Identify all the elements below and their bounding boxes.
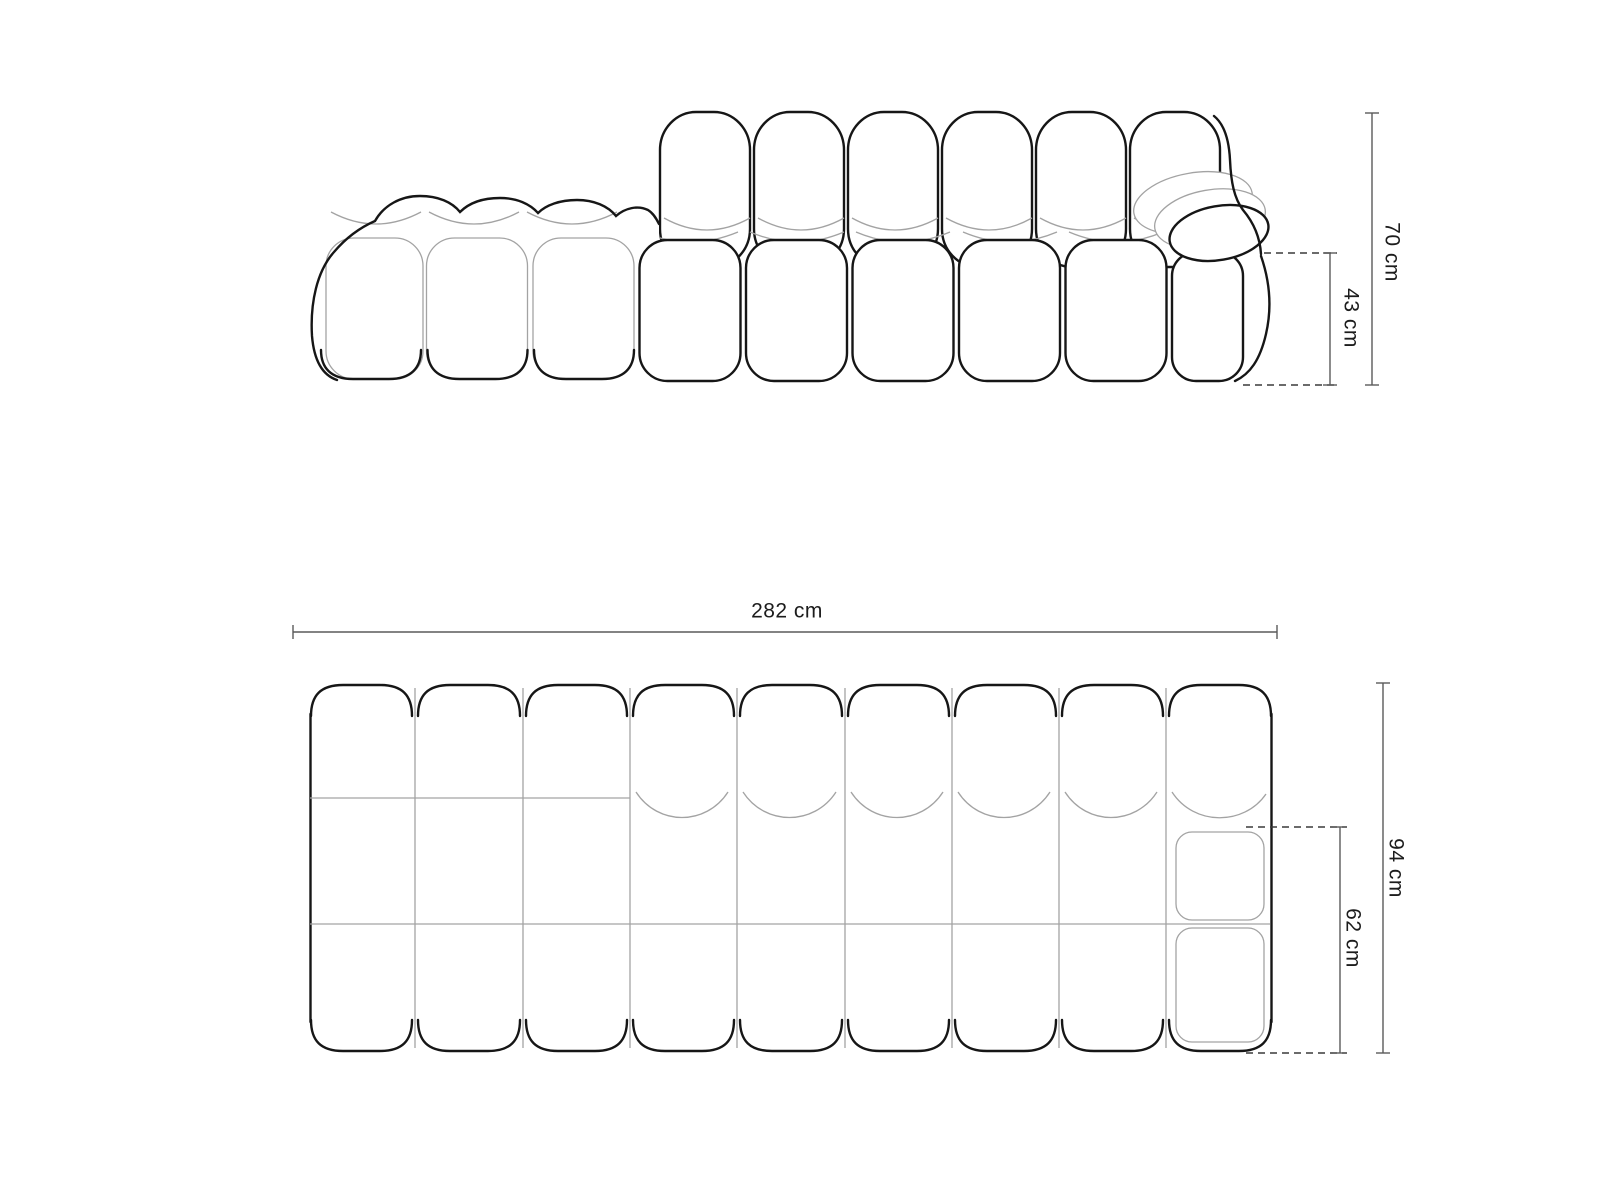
armrest-cushion-upper	[1176, 832, 1264, 920]
dimension-line-282	[293, 625, 1277, 639]
plan-outer-edges	[311, 714, 1272, 1022]
technical-drawing-canvas: 282 cm 70 cm 43 cm 94 cm 62 cm	[0, 0, 1600, 1200]
seat-cushion	[959, 240, 1060, 381]
dimension-line-43	[1323, 253, 1337, 385]
chaise-seat-cushion	[427, 238, 528, 379]
module-caps-bottom	[311, 1020, 1271, 1051]
seat-cushion	[640, 240, 741, 381]
top-plan-view	[293, 625, 1390, 1053]
dimension-label-total-height: 70 cm	[1382, 222, 1403, 282]
chaise-section-front-view	[312, 196, 659, 382]
dimension-label-seat-depth: 62 cm	[1343, 908, 1364, 968]
seat-cushions-front-view	[640, 240, 1244, 381]
seat-cushion	[1066, 240, 1167, 381]
front-elevation-view	[312, 112, 1379, 385]
corner-seat-cushion	[1172, 252, 1243, 381]
dimension-label-total-width: 282 cm	[751, 601, 823, 622]
armrest-cushion-lower	[1176, 928, 1264, 1042]
module-caps-top	[311, 685, 1271, 716]
seat-cushion	[746, 240, 847, 381]
width-depth-dimensions	[293, 625, 1390, 1053]
armrest-plan-view	[1176, 832, 1264, 1042]
dimension-line-70	[1365, 113, 1379, 385]
seat-cushion	[853, 240, 954, 381]
chaise-seat-cushion	[533, 238, 634, 379]
module-seams	[310, 688, 1270, 1048]
backrest-seams-plan	[636, 792, 1266, 818]
chaise-seat-cushion	[326, 238, 423, 379]
dimension-label-seat-height: 43 cm	[1341, 288, 1362, 348]
dimension-label-total-depth: 94 cm	[1386, 838, 1407, 898]
